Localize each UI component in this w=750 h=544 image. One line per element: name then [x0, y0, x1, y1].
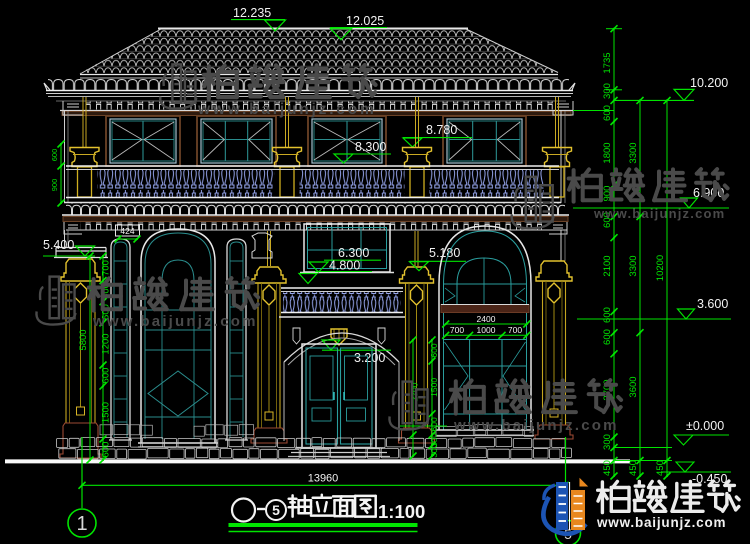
svg-text:300: 300: [602, 83, 613, 99]
svg-text:600: 600: [602, 329, 613, 345]
svg-text:600: 600: [602, 307, 613, 323]
svg-text:1:100: 1:100: [378, 501, 425, 522]
svg-text:600: 600: [101, 368, 112, 384]
svg-text:1500: 1500: [429, 378, 439, 397]
svg-text:300: 300: [602, 434, 613, 450]
svg-text:900: 900: [50, 179, 59, 192]
svg-text:600: 600: [101, 442, 112, 458]
svg-text:www.baijunjz.com: www.baijunjz.com: [593, 206, 725, 221]
svg-text:5.180: 5.180: [429, 246, 460, 260]
svg-text:1800: 1800: [602, 142, 613, 163]
svg-text:450: 450: [602, 460, 613, 476]
svg-text:450: 450: [655, 460, 666, 476]
svg-text:3.600: 3.600: [697, 297, 728, 311]
svg-text:www.baijunjz.com: www.baijunjz.com: [92, 313, 258, 330]
svg-text:13960: 13960: [308, 473, 339, 485]
svg-text:1500: 1500: [101, 402, 112, 423]
svg-text:700: 700: [101, 260, 112, 276]
svg-text:1: 1: [76, 513, 87, 535]
svg-text:4.800: 4.800: [329, 259, 360, 273]
svg-text:3600: 3600: [628, 376, 639, 397]
svg-text:300: 300: [429, 443, 439, 457]
svg-text:5800: 5800: [78, 329, 89, 350]
svg-text:450: 450: [628, 460, 639, 476]
svg-text:3.200: 3.200: [354, 351, 385, 365]
svg-text:www.baijunjz.com: www.baijunjz.com: [453, 417, 619, 434]
svg-text:www.baijunjz.com: www.baijunjz.com: [596, 515, 726, 530]
svg-text:3300: 3300: [628, 255, 639, 276]
svg-text:±0.000: ±0.000: [686, 419, 724, 433]
svg-text:424: 424: [120, 226, 134, 236]
svg-text:700: 700: [450, 325, 464, 335]
svg-text:www.baijunjz.com: www.baijunjz.com: [197, 101, 377, 118]
svg-text:600: 600: [429, 417, 439, 431]
svg-text:12.235: 12.235: [233, 6, 271, 20]
svg-text:600: 600: [429, 343, 439, 357]
svg-text:8.780: 8.780: [426, 123, 457, 137]
svg-text:700: 700: [508, 325, 522, 335]
svg-text:600: 600: [602, 105, 613, 121]
svg-text:3300: 3300: [628, 142, 639, 163]
svg-text:5.400: 5.400: [43, 238, 74, 252]
svg-text:2100: 2100: [602, 255, 613, 276]
svg-text:1000: 1000: [477, 325, 496, 335]
svg-text:12.025: 12.025: [346, 14, 384, 28]
svg-text:2400: 2400: [477, 314, 496, 324]
svg-text:600: 600: [50, 149, 59, 162]
svg-text:1200: 1200: [101, 333, 112, 354]
svg-text:5: 5: [272, 502, 280, 518]
svg-text:10200: 10200: [655, 255, 666, 281]
svg-text:8.300: 8.300: [355, 140, 386, 154]
svg-text:1735: 1735: [602, 52, 613, 73]
svg-text:10.200: 10.200: [690, 76, 728, 90]
